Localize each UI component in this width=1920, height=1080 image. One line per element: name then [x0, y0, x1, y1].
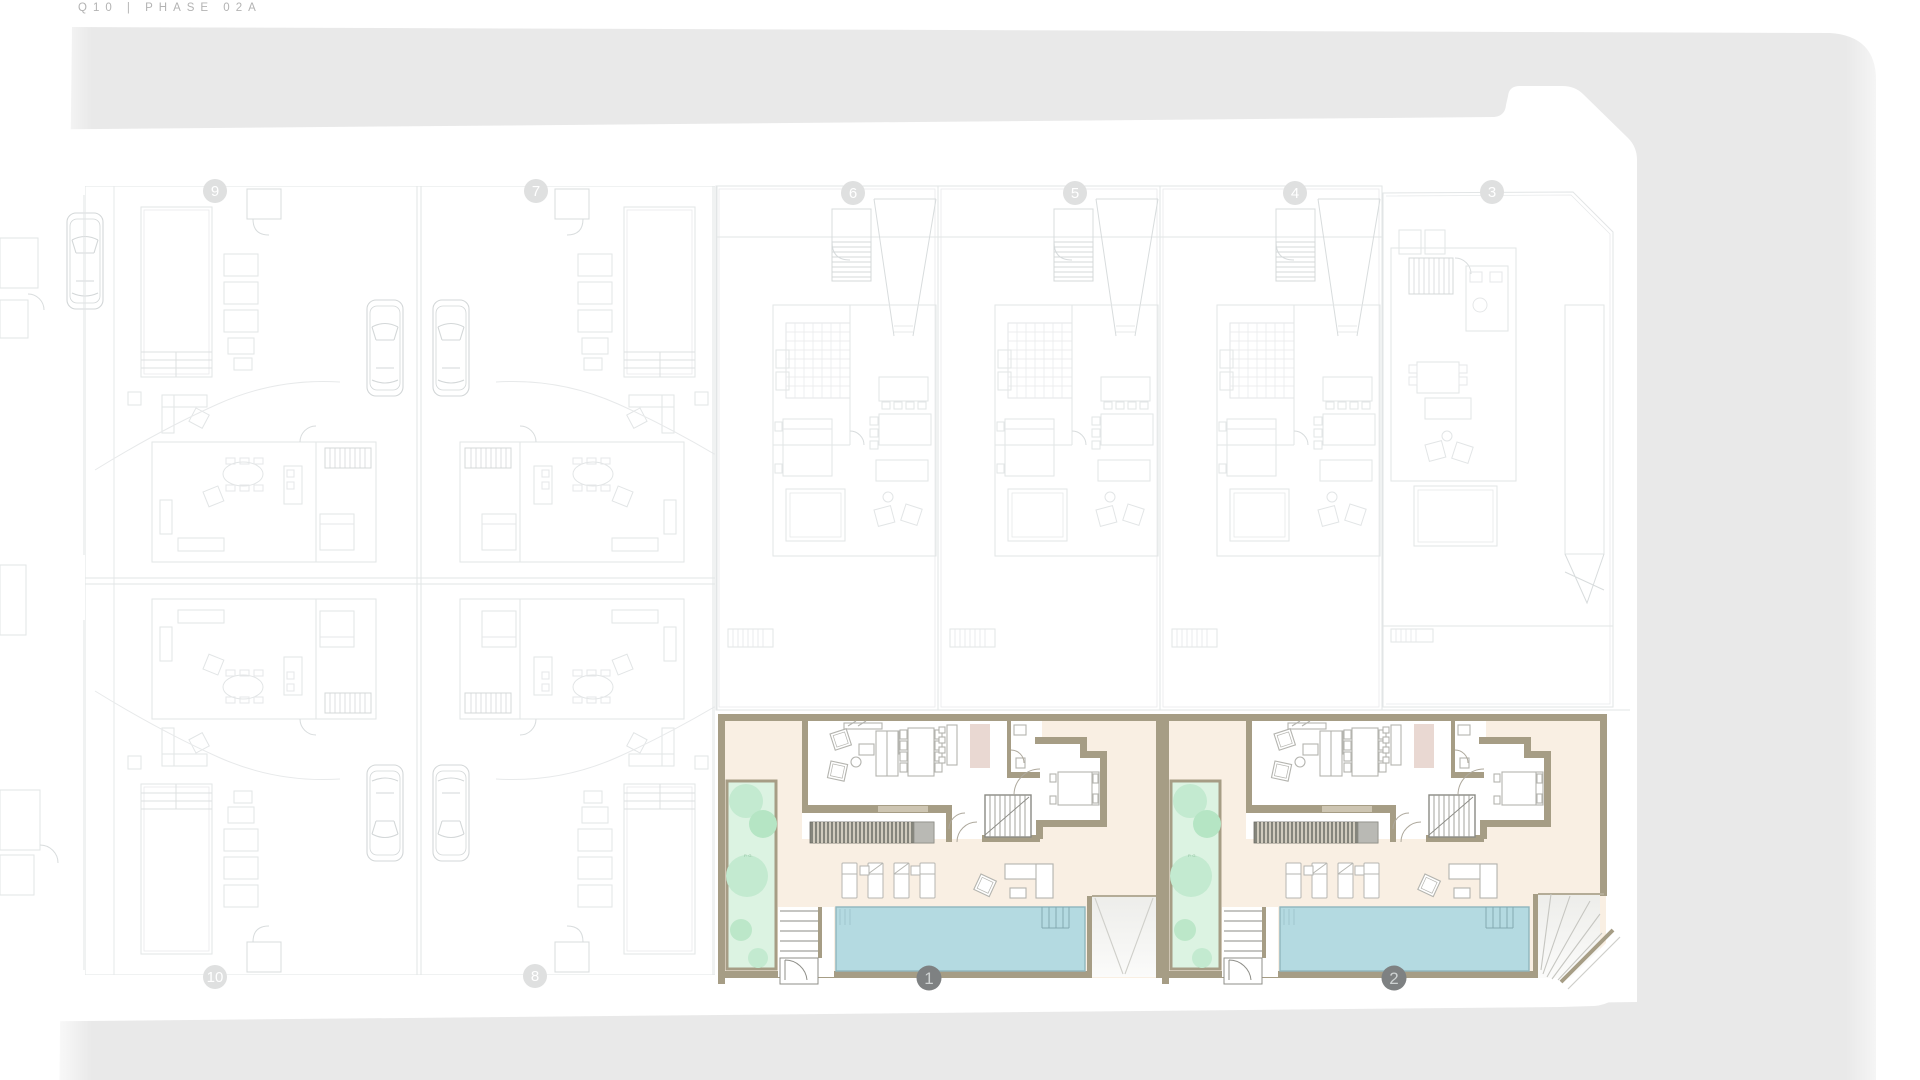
svg-text:1: 1: [924, 969, 933, 988]
svg-text:6: 6: [849, 185, 857, 202]
svg-text:Q10 | PHASE 02A: Q10 | PHASE 02A: [78, 2, 262, 14]
svg-text:5: 5: [1071, 185, 1079, 202]
svg-text:4: 4: [1291, 185, 1299, 202]
svg-text:2: 2: [1389, 969, 1398, 988]
svg-text:3: 3: [1488, 184, 1496, 201]
svg-text:7: 7: [532, 183, 540, 200]
svg-text:8: 8: [531, 968, 539, 985]
svg-text:9: 9: [211, 183, 219, 200]
svg-text:10: 10: [207, 969, 224, 986]
